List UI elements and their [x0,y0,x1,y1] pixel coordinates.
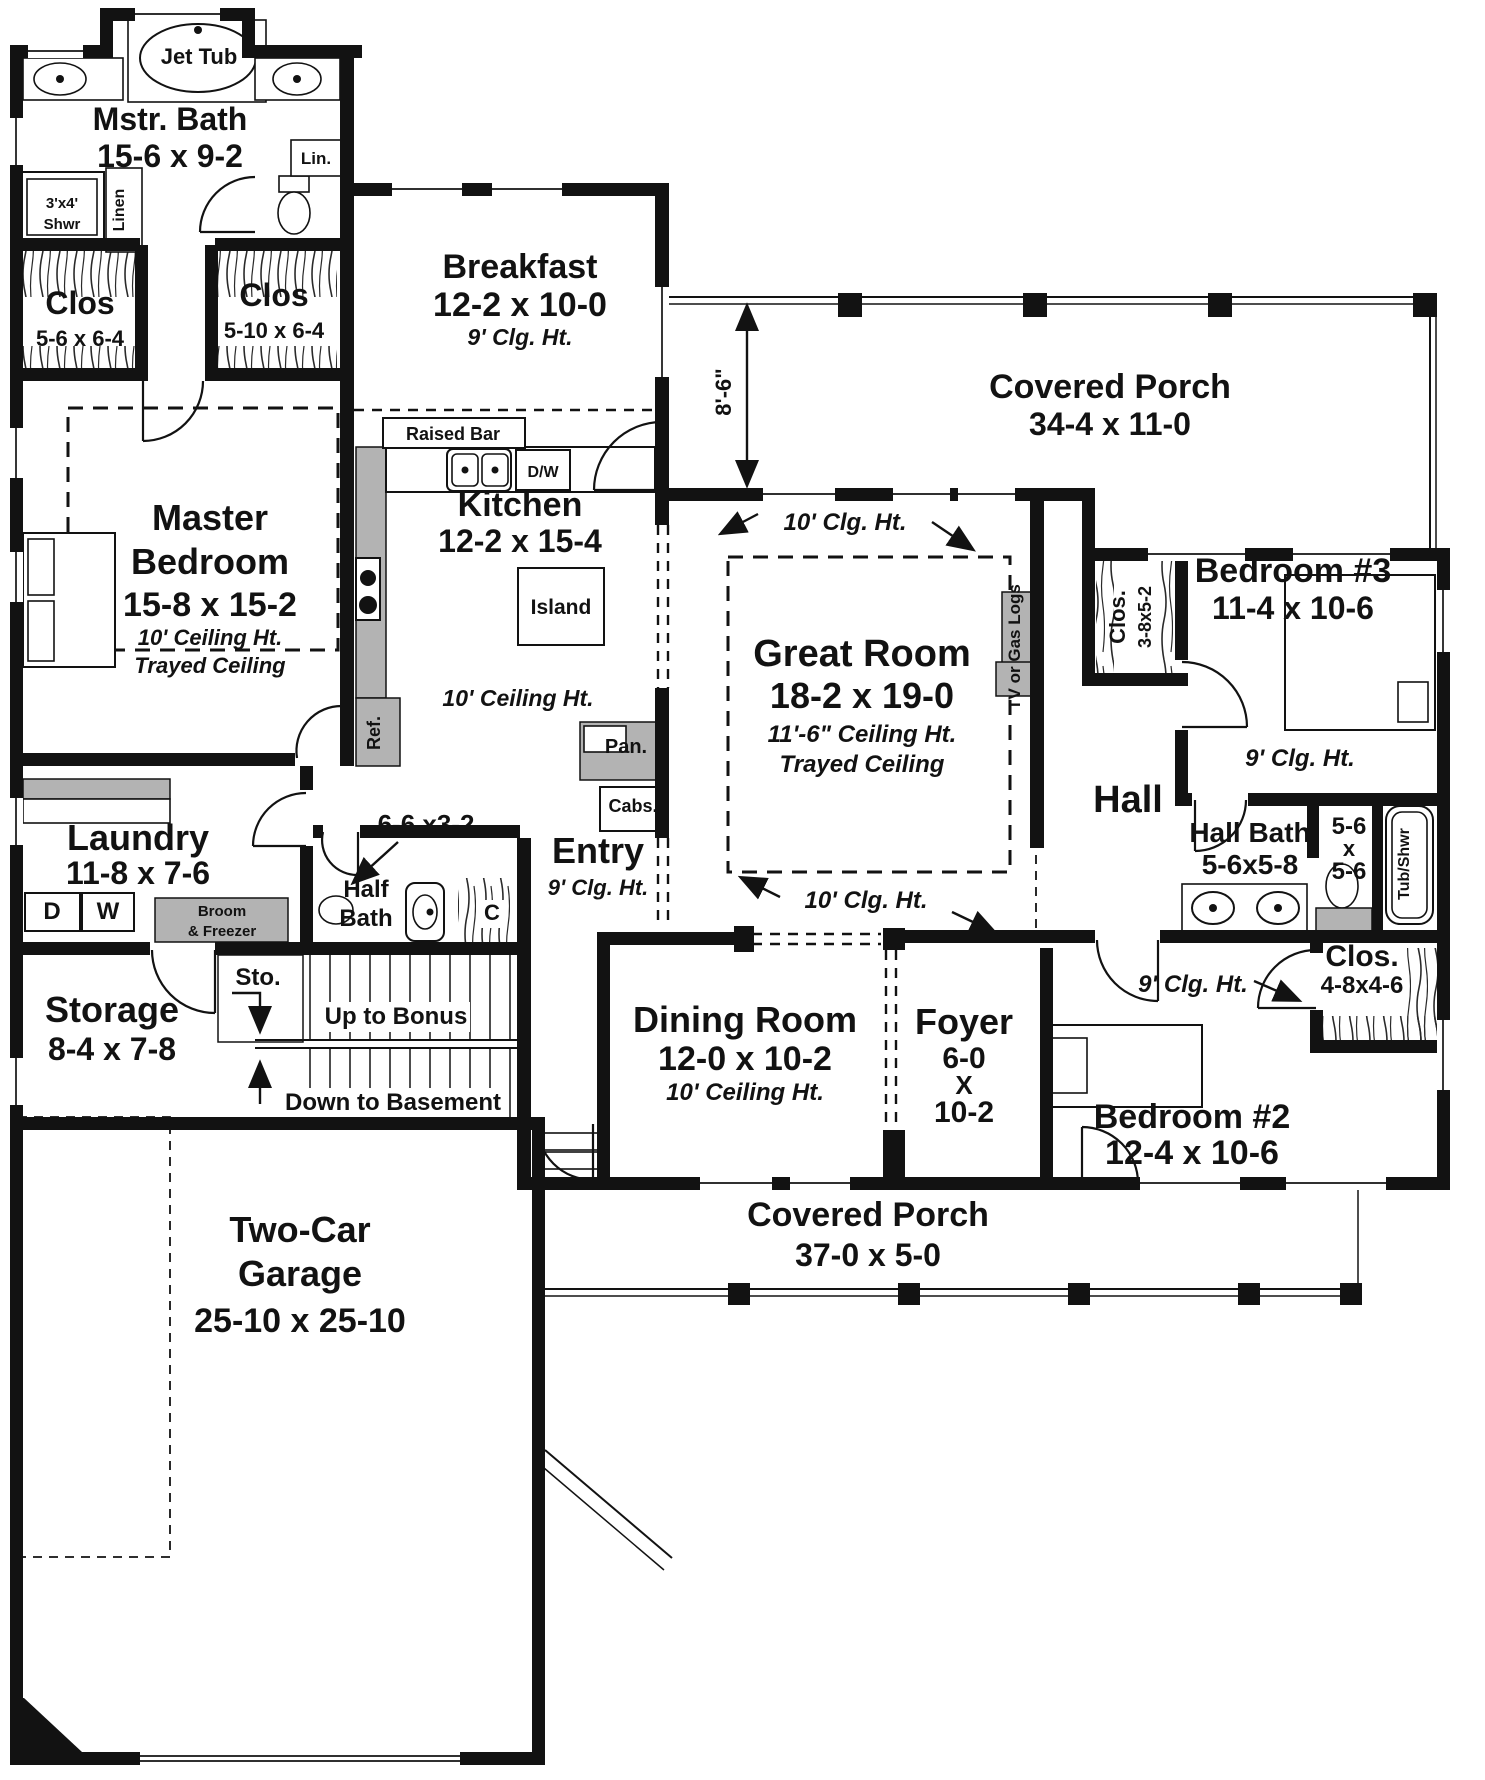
label-closet-3-8-dim: 3-8x5-2 [1135,586,1155,648]
label-covered-porch-top-1: 34-4 x 11-0 [1029,406,1191,442]
label-master-bedroom-4: Trayed Ceiling [134,653,286,678]
label-hall: Hall [1093,779,1163,821]
label-refrigerator: Ref. [364,716,384,750]
label-tub-shower: Tub/Shwr [1396,828,1413,900]
label-entry-1: 9' Clg. Ht. [548,875,649,900]
label-great-ceiling-bottom: 10' Clg. Ht. [804,887,927,914]
label-storage-1: 8-4 x 7-8 [48,1031,176,1067]
garage-door-opening [140,1752,460,1765]
toilet-master [278,192,310,234]
label-bedroom-2-0: Bedroom #2 [1094,1098,1291,1136]
label-up-to-bonus: Up to Bonus [325,1003,468,1030]
label-covered-porch-top-0: Covered Porch [989,368,1231,406]
label-foyer-3: 10-2 [934,1096,994,1129]
label-great-ceiling-top: 10' Clg. Ht. [783,509,906,536]
label-dining-room-2: 10' Ceiling Ht. [666,1079,824,1106]
label-laundry-1: 11-8 x 7-6 [66,855,210,891]
left-exterior-wall [10,45,23,1765]
label-master-closet-1-1: 5-6 x 6-4 [36,326,125,351]
toilet-room-door [200,177,255,232]
label-great-room-1: 18-2 x 19-0 [770,675,954,716]
label-closet-3-8-name: Clos. [1105,590,1130,644]
label-foyer-0: Foyer [915,1001,1013,1042]
label-breakfast-1: 12-2 x 10-0 [433,286,607,324]
label-master-bedroom-0: Master [152,497,268,538]
label-master-closet-2-1: 5-10 x 6-4 [224,318,325,343]
closet-hall-door [143,381,203,441]
label-dryer: D [43,898,60,925]
label-pantry: Pan. [605,736,647,758]
label-master-closet-2-0: Clos [239,277,308,313]
label-master-bath-0: Mstr. Bath [93,101,248,137]
label-garage-0: Two-Car [229,1209,370,1250]
label-bedroom-3-0: Bedroom #3 [1195,552,1392,590]
label-dishwasher: D/W [527,464,559,481]
label-master-bedroom-2: 15-8 x 15-2 [123,586,297,624]
label-half-bath-1: Bath [339,905,392,932]
label-kitchen-ceiling: 10' Ceiling Ht. [442,685,593,711]
label-down-to-basement: Down to Basement [285,1089,501,1116]
label-entry-0: Entry [552,830,644,871]
label-bedroom-2-1: 12-4 x 10-6 [1105,1134,1279,1172]
label-master-bedroom-1: Bedroom [131,541,289,582]
label-linen-closet: Linen [111,189,128,232]
label-bedroom-3-1: 11-4 x 10-6 [1212,590,1374,626]
label-wc-dim-2: 5-6 [1332,858,1367,885]
label-garage-1: Garage [238,1253,362,1294]
label-porch-depth-dim: 8'-6" [711,368,736,415]
floor-plan: Jet TubMstr. Bath15-6 x 9-2Lin.3'x4'Shwr… [0,0,1485,1780]
label-coat-closet: C [484,900,500,925]
label-raised-bar: Raised Bar [406,424,500,444]
floor-plan-page: Jet TubMstr. Bath15-6 x 9-2Lin.3'x4'Shwr… [0,0,1485,1780]
label-covered-porch-bottom-1: 37-0 x 5-0 [795,1237,941,1273]
bedroom3-door [1182,662,1247,727]
label-storage-0: Storage [45,989,179,1030]
porch-post [728,1283,750,1305]
label-covered-porch-bottom-0: Covered Porch [747,1196,989,1234]
label-dining-room-0: Dining Room [633,999,857,1040]
stair-down-arrow [232,993,260,1030]
laundry-counter [23,779,170,799]
porch-post [1068,1283,1090,1305]
half-bath-door [322,832,358,875]
label-master-closet-1-0: Clos [45,285,114,321]
label-closet-4-8-0: Clos. [1325,940,1398,973]
label-broom-freezer-1: & Freezer [188,923,257,940]
label-dining-room-1: 12-0 x 10-2 [658,1040,832,1078]
label-bedroom2-ceiling: 9' Clg. Ht. [1138,971,1248,998]
label-great-room-0: Great Room [753,633,970,675]
label-shower-1: Shwr [44,216,81,233]
label-master-bedroom-3: 10' Ceiling Ht. [138,625,283,650]
laundry-door [253,793,306,846]
porch-post [1238,1283,1260,1305]
porch-post [898,1283,920,1305]
label-breakfast-0: Breakfast [443,248,598,286]
label-hall-dim: 6-6 x3-2 [378,809,475,839]
label-garage-2: 25-10 x 25-10 [194,1302,406,1340]
label-kitchen-1: 12-2 x 15-4 [438,523,602,559]
label-hall-bath-0: Hall Bath [1189,817,1310,848]
label-bedroom3-ceiling: 9' Clg. Ht. [1245,745,1355,772]
toilet-tank-master [279,176,309,192]
garage-corner-chamfer [10,1698,82,1765]
label-cabinets: Cabs. [608,796,657,816]
label-breakfast-2: 9' Clg. Ht. [467,324,572,350]
label-storage-under-stair: Sto. [235,964,280,991]
garage-dashed-area [18,1117,170,1557]
label-shower-0: 3'x4' [46,195,78,212]
label-jet-tub: Jet Tub [161,44,238,69]
label-great-room-2: 11'-6" Ceiling Ht. [768,721,957,748]
label-half-bath-0: Half [343,876,389,903]
bedroom2-closet-door [1258,950,1316,1008]
label-great-room-3: Trayed Ceiling [780,751,945,778]
label-laundry-0: Laundry [67,817,209,858]
label-master-bath-1: 15-6 x 9-2 [97,138,243,174]
label-island: Island [531,596,592,619]
label-washer: W [97,898,120,925]
label-closet-4-8-1: 4-8x4-6 [1321,972,1404,999]
label-hall-bath-1: 5-6x5-8 [1202,849,1299,880]
label-broom-freezer-0: Broom [198,903,246,920]
label-tv-gas-logs: TV or Gas Logs [1005,584,1024,710]
label-linen-cabinet: Lin. [301,149,331,168]
master-bedroom-door [296,706,342,758]
label-kitchen-0: Kitchen [458,486,583,524]
